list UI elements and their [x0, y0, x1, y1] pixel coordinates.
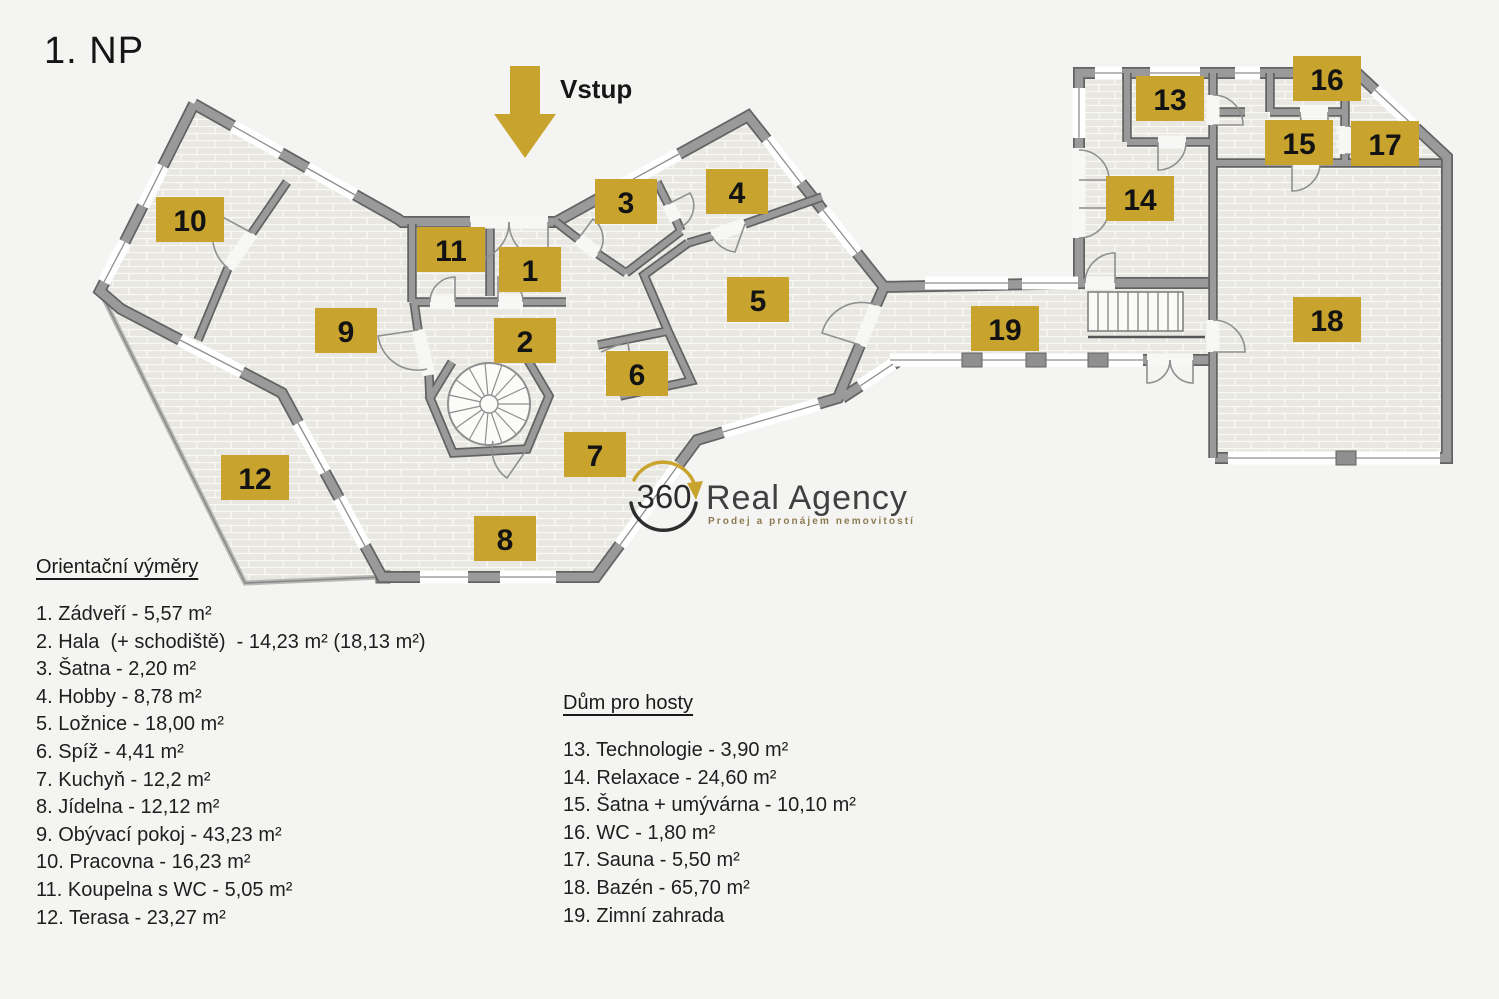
- svg-text:8: 8: [497, 524, 514, 557]
- logo-360-text: 360: [636, 478, 691, 515]
- legend-item: 9. Obývací pokoj - 43,23 m²: [36, 822, 426, 850]
- svg-text:15: 15: [1282, 128, 1315, 161]
- room-badge-15: 15: [1265, 120, 1333, 165]
- legend-item: 2. Hala (+ schodiště) - 14,23 m² (18,13 …: [36, 629, 426, 657]
- legend-item: 8. Jídelna - 12,12 m²: [36, 794, 426, 822]
- room-badge-2: 2: [494, 318, 556, 363]
- room-badge-14: 14: [1106, 176, 1174, 221]
- room-badge-11: 11: [417, 227, 485, 272]
- svg-text:1: 1: [522, 255, 539, 288]
- legend-item: 10. Pracovna - 16,23 m²: [36, 849, 426, 877]
- room-badge-10: 10: [156, 197, 224, 242]
- legend-item: 18. Bazén - 65,70 m²: [563, 875, 856, 903]
- legend-main-house: Orientační výměry 1. Zádveří - 5,57 m²2.…: [36, 556, 426, 932]
- legend-item: 7. Kuchyň - 12,2 m²: [36, 767, 426, 795]
- svg-text:17: 17: [1368, 129, 1401, 162]
- room-badge-8: 8: [474, 516, 536, 561]
- logo-tagline: Prodej a pronájem nemovitostí: [708, 516, 915, 527]
- room-badge-9: 9: [315, 308, 377, 353]
- room-badge-12: 12: [221, 455, 289, 500]
- svg-text:13: 13: [1153, 84, 1186, 117]
- svg-text:5: 5: [750, 285, 767, 318]
- legend-item: 19. Zimní zahrada: [563, 903, 856, 931]
- room-badge-1: 1: [499, 247, 561, 292]
- svg-text:9: 9: [338, 316, 355, 349]
- legend-item: 16. WC - 1,80 m²: [563, 820, 856, 848]
- legend-item: 12. Terasa - 23,27 m²: [36, 905, 426, 933]
- room-badge-13: 13: [1136, 76, 1204, 121]
- svg-text:19: 19: [988, 314, 1021, 347]
- legend-main-heading: Orientační výměry: [36, 556, 426, 579]
- room-badge-7: 7: [564, 432, 626, 477]
- legend-guest-rows: 13. Technologie - 3,90 m²14. Relaxace - …: [563, 737, 856, 930]
- logo-agency-name: Real Agency: [706, 479, 908, 517]
- room-badge-3: 3: [595, 179, 657, 224]
- room-badge-17: 17: [1351, 121, 1419, 166]
- svg-text:12: 12: [238, 463, 271, 496]
- room-badge-18: 18: [1293, 297, 1361, 342]
- svg-text:4: 4: [729, 177, 746, 210]
- legend-item: 13. Technologie - 3,90 m²: [563, 737, 856, 765]
- legend-item: 11. Koupelna s WC - 5,05 m²: [36, 877, 426, 905]
- legend-item: 17. Sauna - 5,50 m²: [563, 847, 856, 875]
- room-badge-16: 16: [1293, 56, 1361, 101]
- page-title: 1. NP: [44, 30, 144, 73]
- svg-text:14: 14: [1123, 184, 1157, 217]
- room-badge-6: 6: [606, 351, 668, 396]
- legend-item: 14. Relaxace - 24,60 m²: [563, 765, 856, 793]
- spiral-staircase: [448, 363, 530, 445]
- legend-item: 4. Hobby - 8,78 m²: [36, 684, 426, 712]
- legend-item: 5. Ložnice - 18,00 m²: [36, 711, 426, 739]
- room-badge-19: 19: [971, 306, 1039, 351]
- svg-text:3: 3: [618, 187, 635, 220]
- legend-item: 6. Spíž - 4,41 m²: [36, 739, 426, 767]
- svg-text:6: 6: [629, 359, 646, 392]
- floorplan-page: 1 2 3 4 5 6 7 8 9 10 11 12 13 14 15 16 1…: [0, 0, 1499, 999]
- svg-text:16: 16: [1310, 64, 1343, 97]
- room-badge-5: 5: [727, 277, 789, 322]
- svg-text:18: 18: [1310, 305, 1343, 338]
- svg-text:7: 7: [587, 440, 604, 473]
- legend-main-rows: 1. Zádveří - 5,57 m²2. Hala (+ schodiště…: [36, 601, 426, 932]
- entrance-label: Vstup: [560, 74, 632, 105]
- legend-guest-heading: Dům pro hosty: [563, 692, 856, 715]
- legend-item: 1. Zádveří - 5,57 m²: [36, 601, 426, 629]
- legend-item: 15. Šatna + umývárna - 10,10 m²: [563, 792, 856, 820]
- svg-text:10: 10: [173, 205, 206, 238]
- room-badge-4: 4: [706, 169, 768, 214]
- svg-text:2: 2: [517, 326, 534, 359]
- svg-text:11: 11: [435, 235, 467, 268]
- legend-item: 3. Šatna - 2,20 m²: [36, 656, 426, 684]
- entrance-arrow-icon: [494, 66, 556, 158]
- legend-guest-house: Dům pro hosty 13. Technologie - 3,90 m²1…: [563, 692, 856, 930]
